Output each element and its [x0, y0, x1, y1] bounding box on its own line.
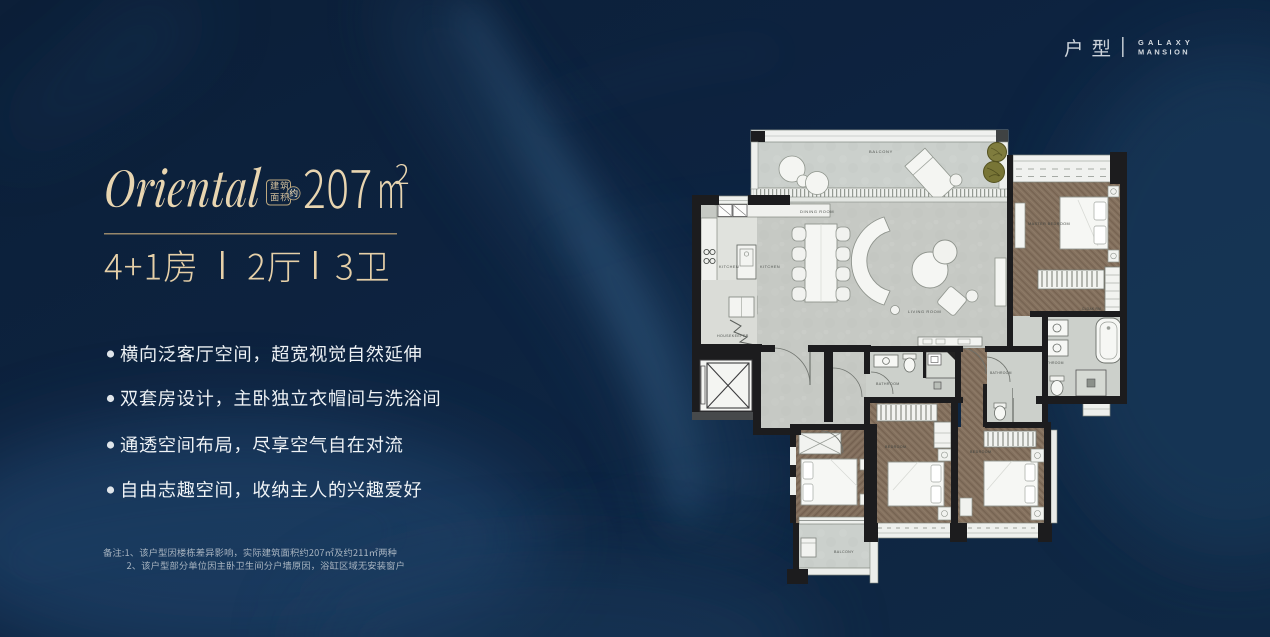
svg-text:MANSION: MANSION [1138, 48, 1190, 57]
svg-text:KITCHEN: KITCHEN [719, 265, 739, 269]
svg-text:CLOAK RM: CLOAK RM [1082, 307, 1101, 311]
svg-text:BEDROOM: BEDROOM [885, 445, 906, 449]
svg-text:GALAXY: GALAXY [1138, 38, 1194, 47]
svg-text:DINING ROOM: DINING ROOM [800, 209, 834, 214]
svg-text:BALCONY: BALCONY [869, 149, 893, 154]
svg-text:BATHROOM: BATHROOM [990, 371, 1012, 375]
svg-text:KITCHEN: KITCHEN [760, 265, 780, 269]
svg-text:BALCONY: BALCONY [834, 550, 854, 554]
svg-text:MASTER BEDROOM: MASTER BEDROOM [1028, 222, 1070, 226]
svg-text:BEDROOM: BEDROOM [970, 450, 991, 454]
svg-text:LIVING ROOM: LIVING ROOM [908, 309, 941, 314]
svg-text:BATHROOM: BATHROOM [876, 382, 900, 386]
